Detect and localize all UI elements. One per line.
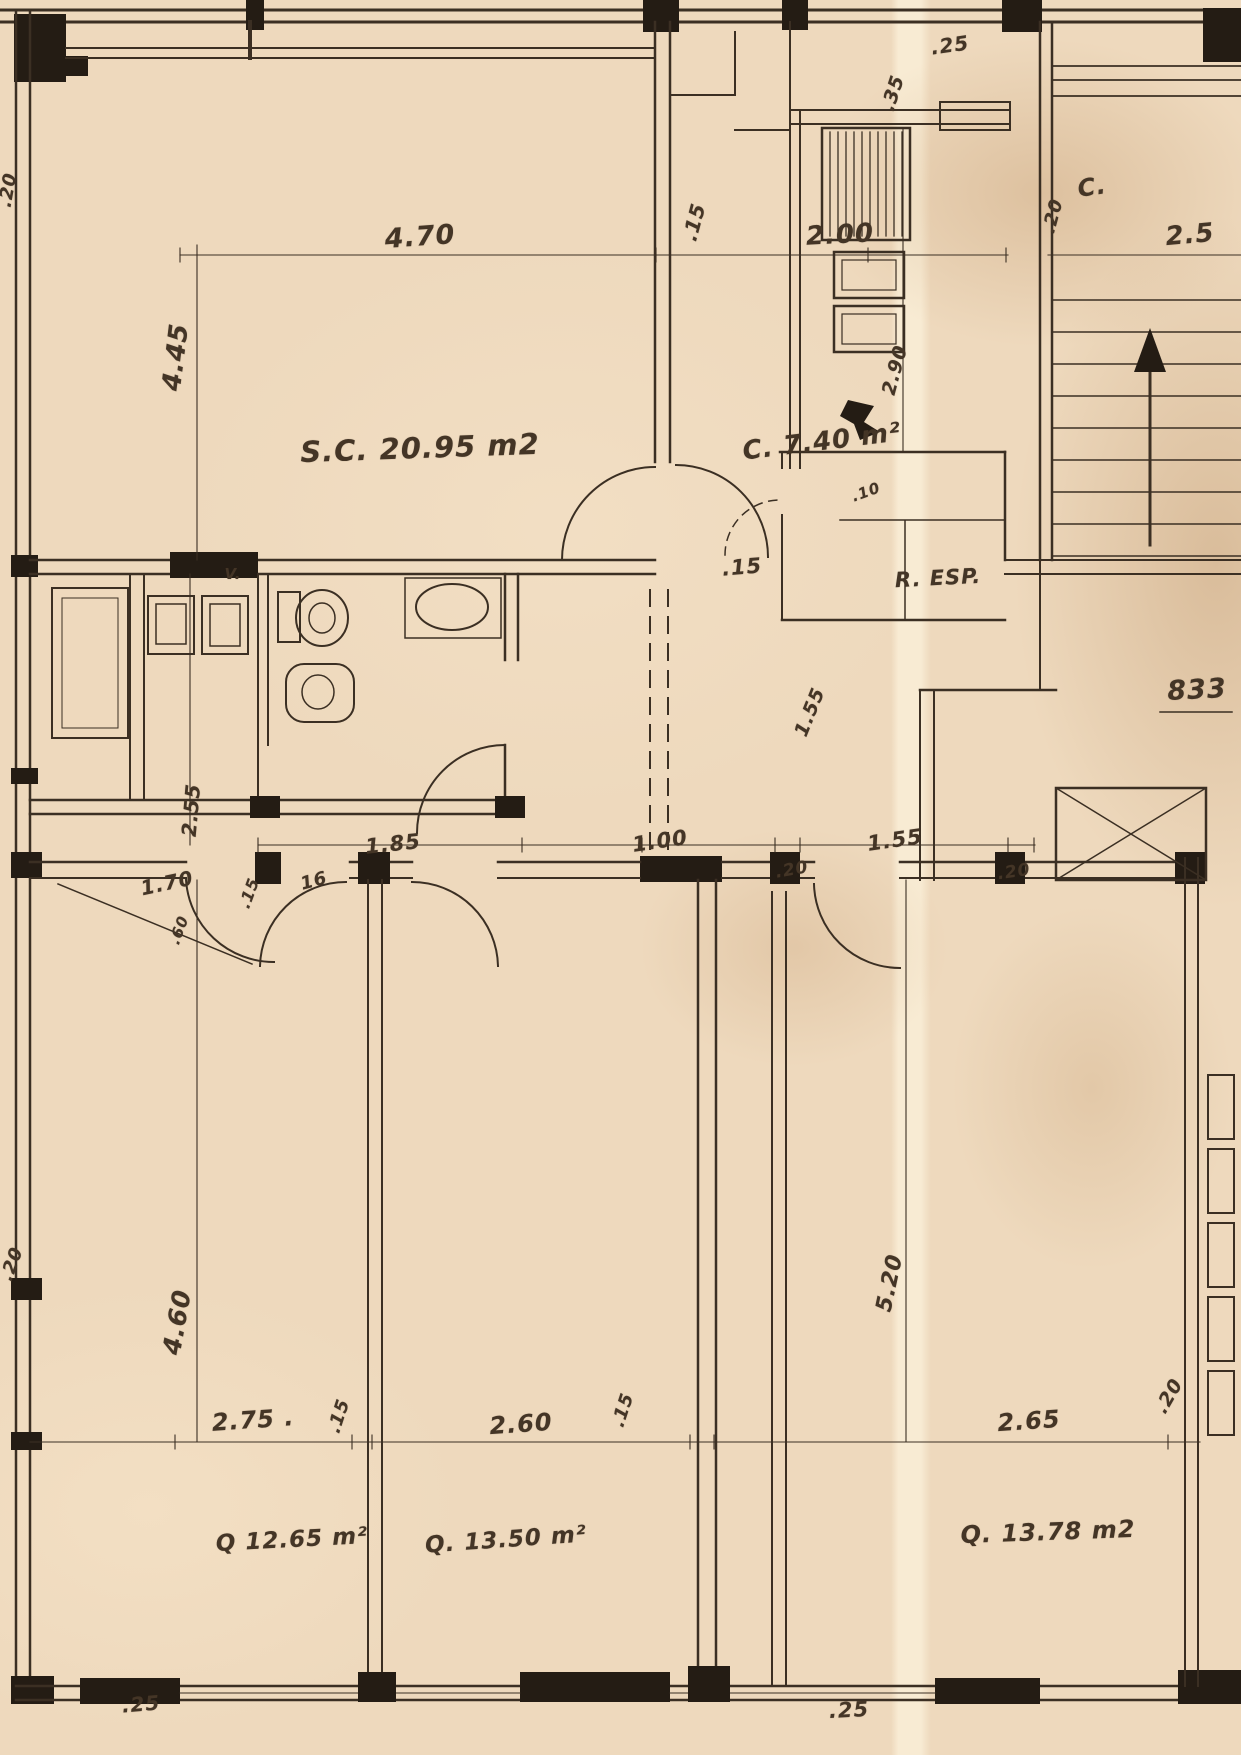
bathroom-fixtures [52, 578, 501, 738]
door-arc-bedroom-2 [412, 882, 498, 966]
door-arc-kitchen [676, 465, 768, 557]
laundry-tub [52, 588, 128, 738]
dim-label-265: 2.65 [996, 1405, 1061, 1437]
hatched-party-wall [1208, 1075, 1234, 1435]
dim-label-25-right: 2.5 [1164, 218, 1215, 252]
sink-icon [416, 584, 488, 630]
bidet-icon [286, 664, 354, 722]
door-arc-bedroom-3 [814, 884, 900, 968]
dim-label-25-bottom-right: .25 [828, 1697, 869, 1723]
door-arcs [58, 465, 900, 968]
door-arc-bathroom [417, 745, 505, 833]
toilet-icon [296, 590, 348, 646]
up-arrow-head [1134, 328, 1166, 372]
vent-label: V. [225, 565, 242, 583]
dim-label-260: 2.60 [488, 1408, 553, 1440]
elevator-shaft [1056, 788, 1206, 880]
ref-label-833: 833 [1167, 673, 1228, 707]
interior-walls [30, 22, 1241, 1702]
door-arc-living [562, 467, 655, 560]
door-arc-hall-left [186, 880, 274, 962]
dim-label-15-center: .15 [721, 553, 763, 580]
floor-plan-page: 4.70 .15 2.00 .25 .35 C. 2.5 .20 4.45 S.… [0, 0, 1241, 1755]
room-label-hall-c: C. [1076, 171, 1108, 203]
dim-label-470: 4.70 [384, 219, 457, 255]
room-label-pantry: R. ESP. [894, 564, 981, 592]
dim-label-275: 2.75 . [211, 1403, 295, 1437]
stairs [1040, 22, 1241, 560]
dim-label-200: 2.00 [805, 218, 875, 252]
dim-label-25-bottom-left: .25 [121, 1690, 161, 1717]
dim-label-255: 2.55 [177, 782, 206, 837]
